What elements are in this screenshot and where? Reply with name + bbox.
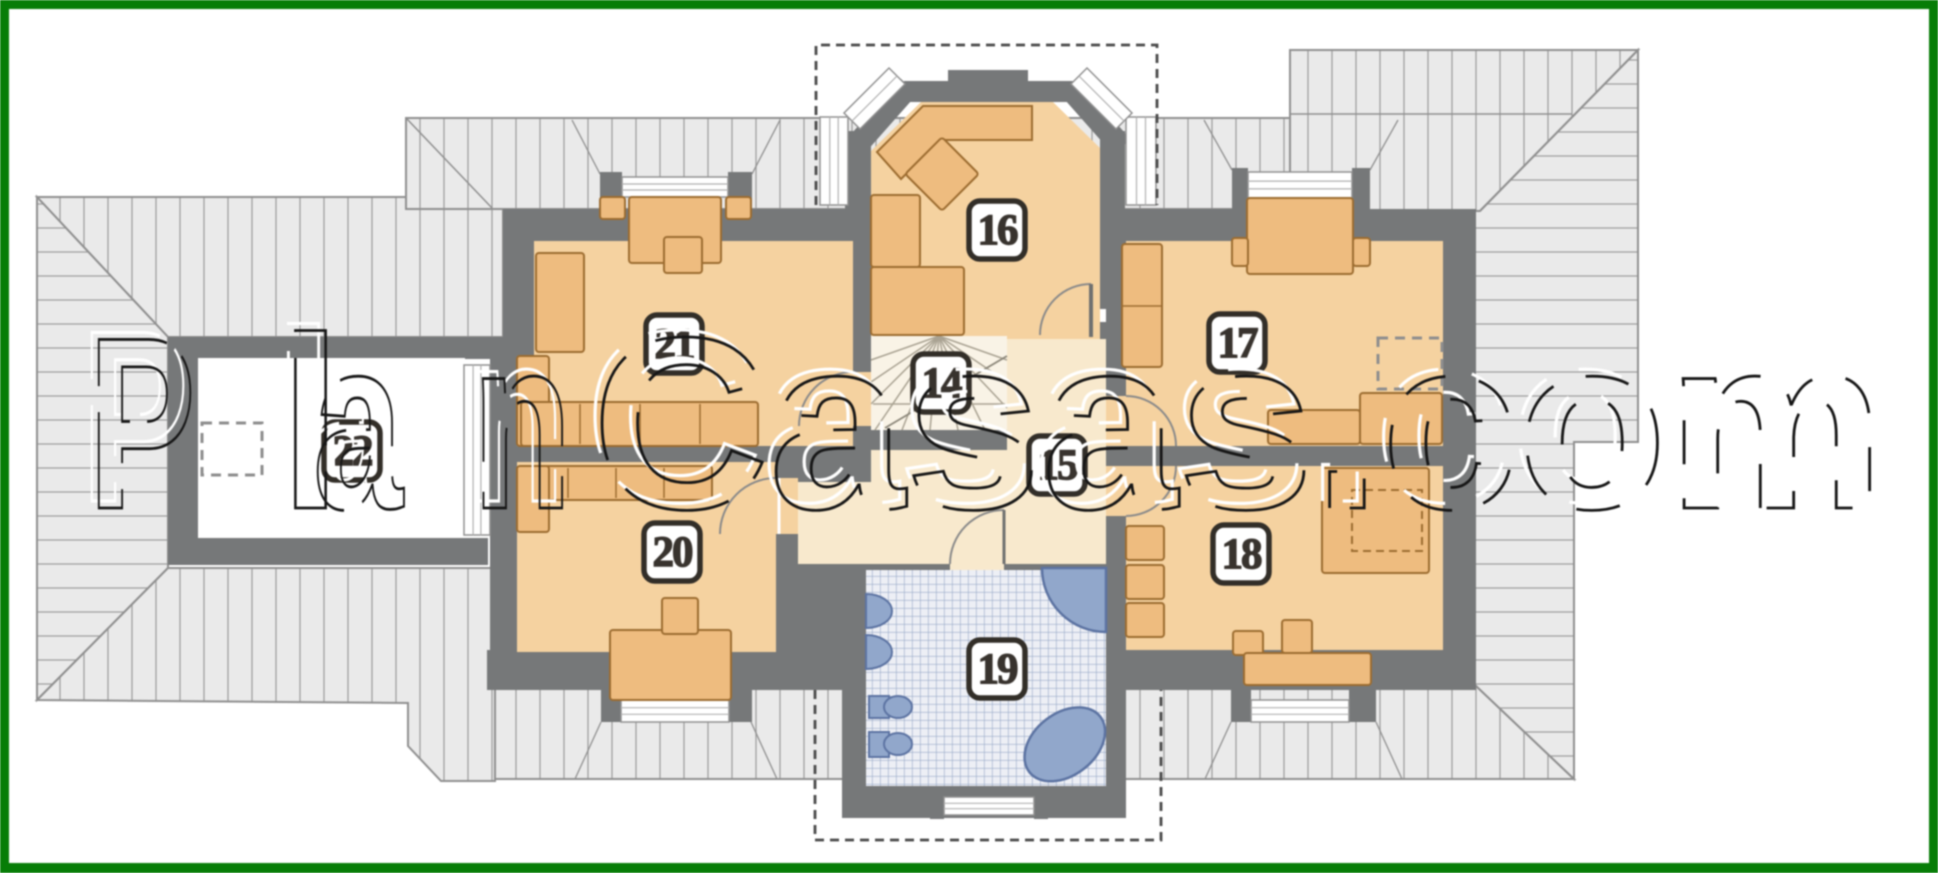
- svg-text:Casas: Casas: [592, 286, 1314, 560]
- svg-text:n: n: [472, 287, 572, 561]
- svg-text:16: 16: [978, 207, 1019, 254]
- svg-text:19: 19: [978, 646, 1018, 693]
- svg-text:.com: .com: [1313, 286, 1885, 560]
- svg-text:P: P: [88, 286, 196, 560]
- svg-text:a: a: [313, 286, 404, 560]
